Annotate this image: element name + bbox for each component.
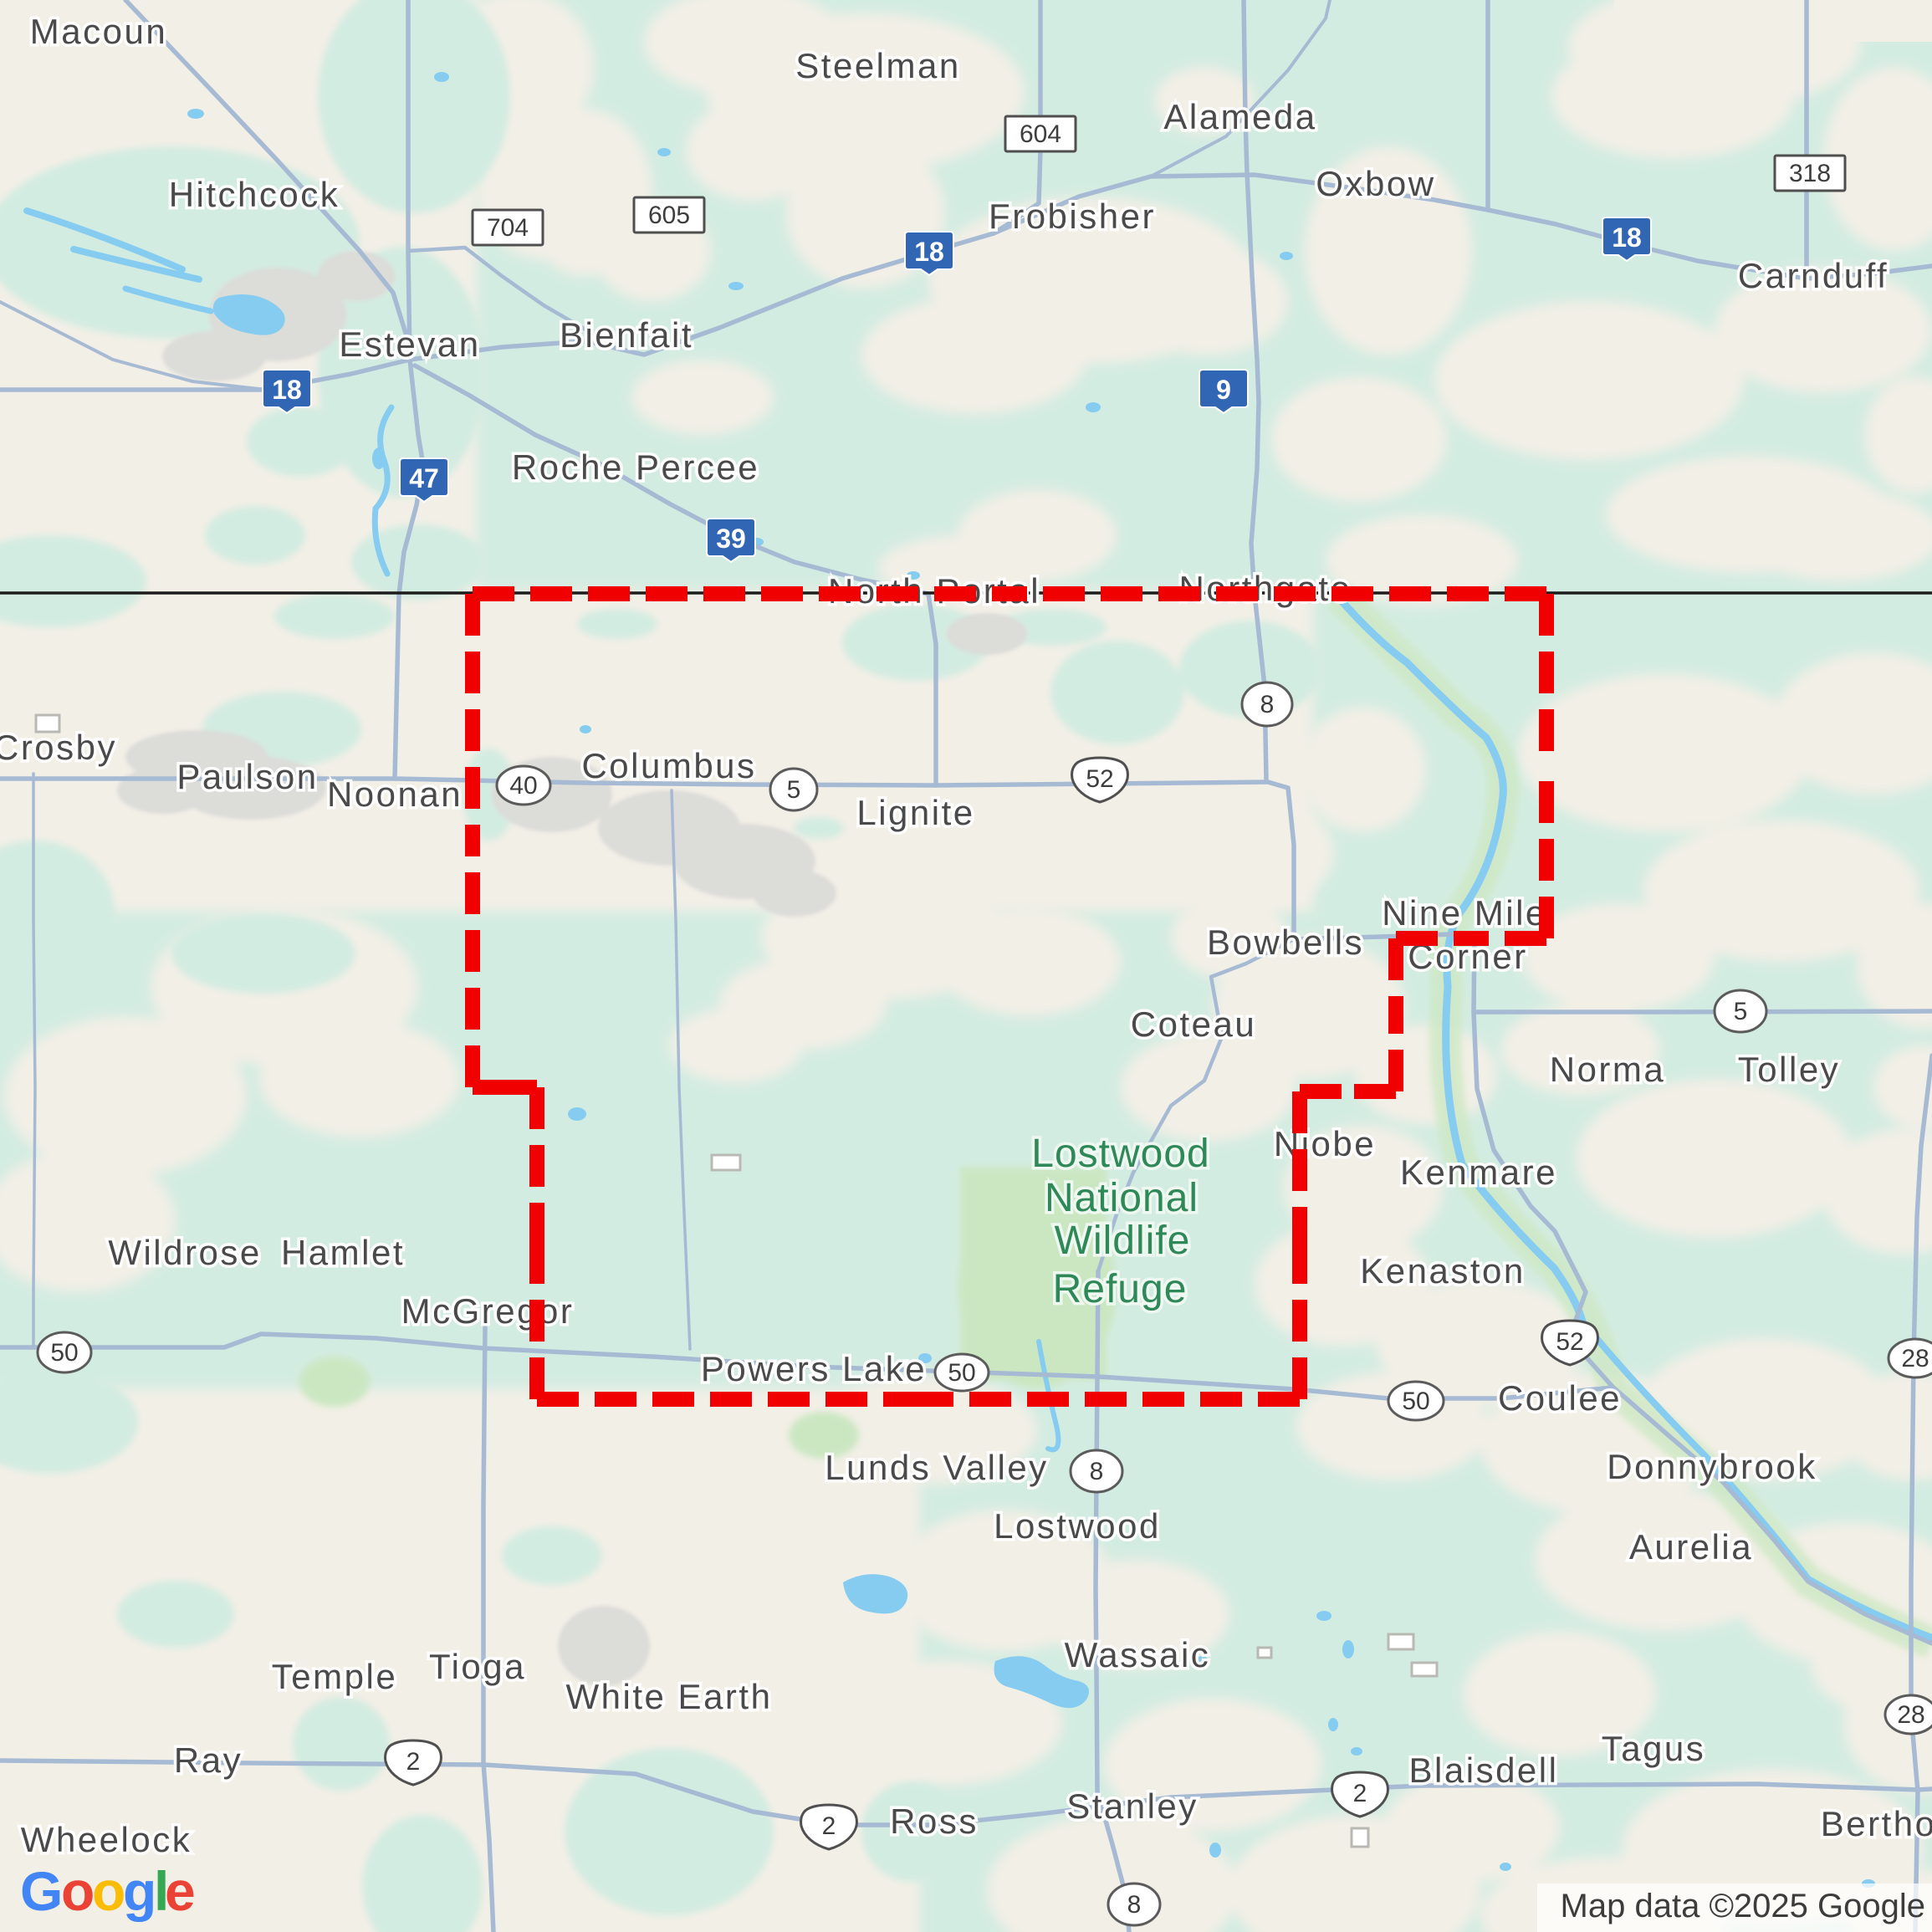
svg-text:Blaisdell: Blaisdell [1409,1751,1559,1790]
svg-text:Lignite: Lignite [856,793,974,832]
svg-text:Berthold: Berthold [1821,1804,1932,1843]
svg-text:Norma: Norma [1550,1050,1666,1089]
svg-text:Northgate: Northgate [1179,569,1352,608]
svg-text:Coulee: Coulee [1498,1378,1622,1418]
svg-text:5: 5 [1734,998,1748,1025]
svg-text:National: National [1045,1176,1199,1220]
svg-text:604: 604 [1020,120,1061,148]
svg-text:Oxbow: Oxbow [1316,164,1435,203]
svg-text:Tioga: Tioga [429,1647,526,1686]
svg-text:Niobe: Niobe [1274,1124,1376,1163]
svg-text:White Earth: White Earth [566,1677,773,1716]
svg-text:605: 605 [648,202,690,229]
svg-text:28: 28 [1901,1345,1929,1372]
svg-text:18: 18 [914,237,944,267]
svg-text:18: 18 [1612,222,1642,253]
svg-text:50: 50 [1402,1388,1429,1415]
svg-text:Steelman: Steelman [795,46,960,85]
svg-text:Bowbells: Bowbells [1207,923,1364,962]
svg-text:318: 318 [1789,160,1831,187]
svg-text:Frobisher: Frobisher [989,197,1156,236]
svg-text:Stanley: Stanley [1066,1786,1199,1826]
svg-text:Crosby: Crosby [0,728,117,767]
svg-text:5: 5 [787,776,801,804]
svg-text:Carnduff: Carnduff [1738,256,1889,295]
svg-text:o: o [61,1860,95,1922]
svg-text:52: 52 [1556,1328,1583,1356]
svg-text:47: 47 [409,463,439,493]
svg-text:McGregor: McGregor [401,1291,575,1331]
svg-text:Tolley: Tolley [1738,1050,1840,1089]
svg-text:Kenmare: Kenmare [1400,1153,1557,1192]
svg-text:8: 8 [1260,691,1275,718]
svg-text:Nine Mile: Nine Mile [1382,893,1547,933]
svg-text:Coteau: Coteau [1131,1004,1256,1044]
svg-text:2: 2 [822,1812,836,1840]
svg-text:Lostwood: Lostwood [1031,1132,1209,1176]
svg-text:Donnybrook: Donnybrook [1607,1447,1817,1486]
svg-text:g: g [123,1860,156,1922]
svg-text:9: 9 [1216,375,1231,405]
svg-text:Hamlet: Hamlet [281,1233,405,1272]
svg-text:50: 50 [948,1359,975,1387]
svg-text:e: e [165,1860,196,1922]
svg-text:8: 8 [1090,1458,1104,1485]
svg-text:2: 2 [1353,1780,1367,1807]
svg-text:Ross: Ross [890,1802,979,1841]
svg-text:Macoun: Macoun [30,12,167,51]
svg-text:Wildrose: Wildrose [108,1233,261,1272]
svg-text:8: 8 [1127,1891,1142,1919]
svg-text:28: 28 [1897,1701,1924,1729]
svg-text:18: 18 [272,375,302,405]
svg-text:G: G [20,1860,63,1922]
svg-text:Powers Lake: Powers Lake [701,1349,927,1388]
svg-text:Estevan: Estevan [339,325,480,364]
svg-text:o: o [92,1860,125,1922]
svg-text:Alameda: Alameda [1163,97,1316,136]
svg-text:704: 704 [487,214,529,242]
svg-text:Temple: Temple [272,1657,397,1696]
svg-text:Lunds Valley: Lunds Valley [825,1448,1048,1487]
svg-text:Tagus: Tagus [1602,1729,1706,1768]
svg-text:Paulson: Paulson [176,757,318,796]
svg-text:Ray: Ray [174,1740,243,1780]
svg-text:Wildlife: Wildlife [1055,1219,1191,1263]
svg-text:39: 39 [716,524,746,554]
svg-text:Lostwood: Lostwood [994,1506,1161,1546]
svg-text:Wassaic: Wassaic [1065,1635,1211,1674]
svg-text:Wheelock: Wheelock [21,1820,192,1859]
svg-text:Bienfait: Bienfait [560,315,693,355]
svg-text:Map data ©2025 Google: Map data ©2025 Google [1561,1888,1925,1924]
svg-text:50: 50 [50,1339,78,1367]
svg-text:Columbus: Columbus [581,746,756,785]
svg-text:40: 40 [509,772,537,800]
svg-text:52: 52 [1086,765,1113,793]
svg-text:Roche Percee: Roche Percee [512,447,759,487]
svg-text:Refuge: Refuge [1053,1267,1188,1311]
svg-text:Hitchcock: Hitchcock [169,175,340,214]
svg-text:2: 2 [406,1748,421,1776]
svg-text:Aurelia: Aurelia [1629,1527,1753,1567]
svg-text:Noonan: Noonan [327,774,463,814]
svg-text:Kenaston: Kenaston [1360,1251,1525,1291]
